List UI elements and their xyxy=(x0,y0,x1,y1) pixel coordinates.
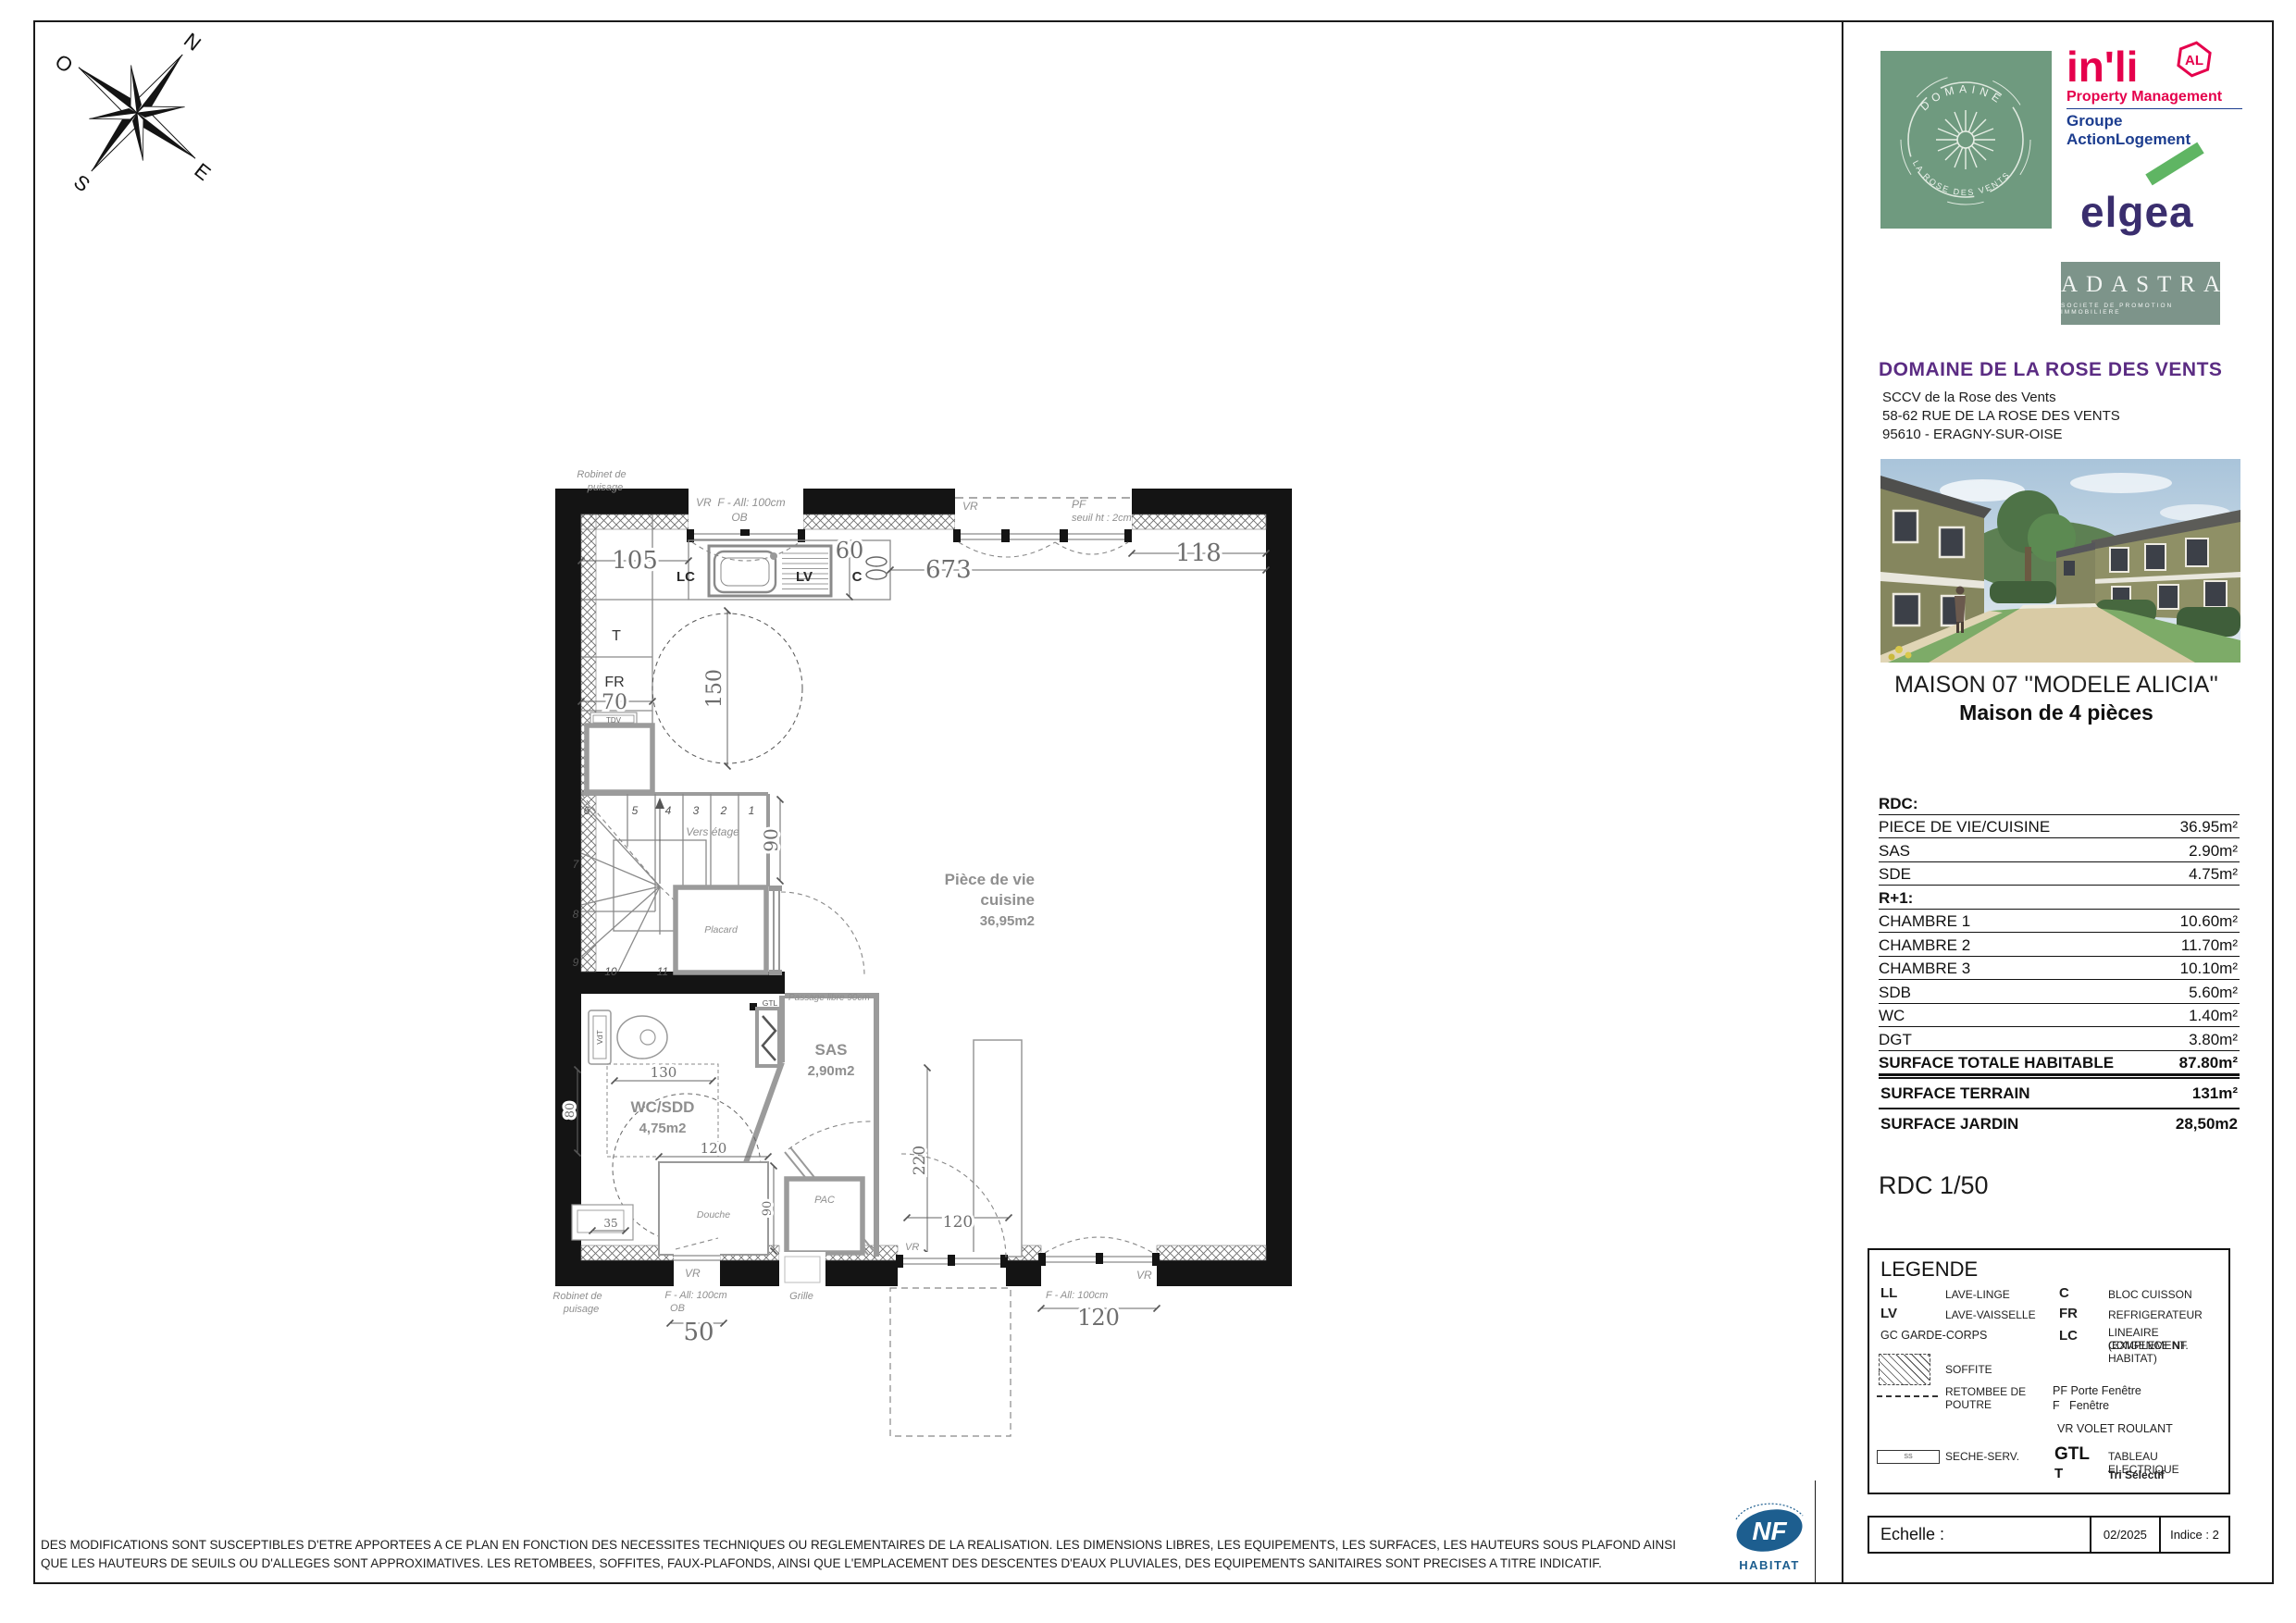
compass-s: S xyxy=(69,170,94,197)
bay-window-top: VR PF seuil ht : 2cm xyxy=(953,489,1132,557)
surface-label: CHAMBRE 3 xyxy=(1879,960,1970,978)
stair-11: 11 xyxy=(657,965,668,978)
gtl-label: GTL xyxy=(763,998,778,1008)
dim-220: 220 xyxy=(911,1146,929,1175)
seche-serv-swatch: SS xyxy=(1877,1450,1940,1464)
sas-name: SAS xyxy=(815,1041,848,1059)
disclaimer: DES MODIFICATIONS SONT SUSCEPTIBLES D'ET… xyxy=(41,1536,1725,1573)
stair-2: 2 xyxy=(720,804,727,817)
floor-scale-label: RDC 1/50 xyxy=(1879,1171,1989,1200)
grille-vent: Grille xyxy=(779,1252,825,1302)
inli-wordmark: in'li xyxy=(2066,43,2138,91)
surface-label: CHAMBRE 1 xyxy=(1879,912,1970,931)
disclaimer-line-2: QUE LES HAUTEURS DE SEUILS OU D'ALLEGES … xyxy=(41,1555,1725,1573)
surface-label: DGT xyxy=(1879,1031,1912,1049)
burner-icon xyxy=(866,570,887,579)
grille-label: Grille xyxy=(789,1291,813,1302)
window-vr-label: VR xyxy=(696,496,712,509)
living-name-2: cuisine xyxy=(980,891,1035,909)
surface-value: 4.75m² xyxy=(2189,865,2238,884)
surface-row: PIECE DE VIE/CUISINE36.95m² xyxy=(1879,815,2240,839)
panel-divider-line xyxy=(1842,20,1843,1582)
gtl-unit: GTL xyxy=(750,998,779,1066)
stair-8: 8 xyxy=(573,908,579,921)
dim-673: 673 xyxy=(925,556,972,584)
legend-t: T xyxy=(2054,1466,2063,1481)
surface-row: DGT3.80m² xyxy=(1879,1027,2240,1051)
surface-value: 10.10m² xyxy=(2180,960,2238,978)
inli-group-line: Groupe ActionLogement xyxy=(2066,112,2242,149)
legend-seche: SECHE-SERV. xyxy=(1945,1450,2019,1463)
bay-pf-label: PF xyxy=(1072,498,1086,511)
living-area: 36,95m2 xyxy=(980,913,1035,929)
dim-50: 50 xyxy=(683,1319,714,1346)
dim-70: 70 xyxy=(602,691,627,714)
window-top-left: VR F - All: 100cm OB xyxy=(687,489,805,561)
indice-cell: Indice : 2 xyxy=(2159,1518,2228,1552)
bay-vr-label: VR xyxy=(962,500,978,513)
dim-80: 80 xyxy=(564,1103,577,1119)
unit-subtitle: Maison de 4 pièces xyxy=(1843,700,2269,725)
window-br-f: F - All: 100cm xyxy=(1046,1290,1108,1301)
table-circle: 150 xyxy=(652,611,802,766)
legend-f: F Fenêtre xyxy=(2053,1399,2109,1412)
surface-label: CHAMBRE 2 xyxy=(1879,936,1970,955)
habitat-text: HABITAT xyxy=(1739,1558,1800,1572)
stair-4: 4 xyxy=(665,804,672,817)
stair-6: 6 xyxy=(584,804,590,817)
faucet xyxy=(770,552,777,560)
dimensions-top: 105 60 673 118 xyxy=(581,538,1266,597)
passage-libre-label: Passage libre 90cm xyxy=(788,993,870,1003)
legend-fr-desc: REFRIGERATEUR xyxy=(2108,1308,2203,1321)
legend-lv: LV xyxy=(1880,1306,1897,1321)
legend-gtl: GTL xyxy=(2054,1444,2090,1465)
floor-plan-drawing: .dim{stroke:#666;stroke-width:1;marker-s… xyxy=(0,0,1842,1623)
inli-logo: in'li AL Property Management Groupe Acti… xyxy=(2066,46,2242,150)
surface-row: CHAMBRE 110.60m² xyxy=(1879,910,2240,934)
label-c: C xyxy=(852,569,863,585)
glazing-alcove xyxy=(974,1040,1022,1257)
living-name-1: Pièce de vie xyxy=(945,871,1035,888)
compass-e: E xyxy=(190,158,215,185)
project-address-2: 58-62 RUE DE LA ROSE DES VENTS xyxy=(1882,407,2249,426)
surface-label: SDB xyxy=(1879,984,1911,1002)
dim-130: 130 xyxy=(651,1064,677,1081)
entry-vr: VR xyxy=(905,1242,919,1253)
surface-table: RDC: PIECE DE VIE/CUISINE36.95m² SAS2.90… xyxy=(1879,791,2240,1076)
window-bl-ob: OB xyxy=(670,1303,685,1314)
legend-box: LEGENDE LL LAVE-LINGE LV LAVE-VAISSELLE … xyxy=(1868,1248,2230,1494)
wc-area: 4,75m2 xyxy=(639,1121,687,1136)
nf-habitat-logo: NF HABITAT xyxy=(1723,1495,1816,1580)
surface-label: SDE xyxy=(1879,865,1911,884)
legend-fr: FR xyxy=(2059,1306,2078,1321)
burner-icon xyxy=(866,557,887,566)
legend-soffite: SOFFITE xyxy=(1945,1363,1992,1376)
surface-label: SAS xyxy=(1879,842,1910,861)
hall-door: 90 xyxy=(760,799,864,975)
legend-c-desc: BLOC CUISSON xyxy=(2108,1288,2192,1301)
elgea-logo: elgea xyxy=(2080,155,2224,248)
jardin-row: SURFACE JARDIN28,50m2 xyxy=(1879,1109,2240,1138)
label-lv: LV xyxy=(796,569,813,585)
compass-o: O xyxy=(51,50,78,78)
surface-value: 5.60m² xyxy=(2189,984,2238,1002)
surface-label: PIECE DE VIE/CUISINE xyxy=(1879,818,2050,836)
domaine-logo-bottom-text: LA ROSE DES VENTS xyxy=(1911,159,2012,197)
project-title: DOMAINE DE LA ROSE DES VENTS xyxy=(1879,359,2249,381)
elgea-wordmark: elgea xyxy=(2080,187,2224,237)
robinet-bottom-2: puisage xyxy=(563,1304,600,1315)
legend-ll-desc: LAVE-LINGE xyxy=(1945,1288,2010,1301)
legend-title: LEGENDE xyxy=(1880,1258,1978,1282)
terrain-table: SURFACE TERRAIN131m² SURFACE JARDIN28,50… xyxy=(1879,1077,2240,1138)
domaine-logo: DOMAINE LA ROSE DES VENTS xyxy=(1880,51,2052,229)
window-ob-label: OB xyxy=(731,511,747,524)
label-tri: T xyxy=(612,628,621,644)
dim-120-door: 120 xyxy=(943,1213,973,1232)
surface-row: CHAMBRE 310.10m² xyxy=(1879,957,2240,981)
wc-name: WC/SDD xyxy=(631,1098,695,1116)
placard: Placard xyxy=(676,887,766,973)
domaine-logo-top-text: DOMAINE xyxy=(1917,82,2006,113)
echelle-cell: Echelle : xyxy=(1869,1518,2090,1552)
robinet-top-1: Robinet de xyxy=(577,469,626,480)
robinet-bottom-1: Robinet de xyxy=(552,1291,602,1302)
inli-rule xyxy=(2066,108,2242,109)
svg-text:LA ROSE DES VENTS: LA ROSE DES VENTS xyxy=(1911,159,2012,197)
window-f-label: F - All: 100cm xyxy=(717,496,785,509)
surface-header-r1: R+1: xyxy=(1879,886,2240,910)
surface-header-rdc: RDC: xyxy=(1879,791,2240,815)
legend-c: C xyxy=(2059,1285,2069,1301)
legend-lv-desc: LAVE-VAISSELLE xyxy=(1945,1308,2036,1321)
adastra-subtitle: SOCIETE DE PROMOTION IMMOBILIERE xyxy=(2061,303,2220,316)
dim-60: 60 xyxy=(836,538,864,564)
vers-etage-label: Vers étage xyxy=(686,825,739,838)
compass-n: N xyxy=(180,28,205,55)
terrain-row: SURFACE TERRAIN131m² xyxy=(1879,1077,2240,1109)
retombee-dash-swatch xyxy=(1877,1395,1938,1397)
dim-150: 150 xyxy=(703,669,726,708)
stair-5: 5 xyxy=(632,804,639,817)
surface-row: SDE4.75m² xyxy=(1879,862,2240,886)
legend-lc: LC xyxy=(2059,1328,2078,1344)
surface-value: 36.95m² xyxy=(2180,818,2238,836)
legend-vr: VR VOLET ROULANT xyxy=(2057,1422,2173,1435)
surface-value: 11.70m² xyxy=(2181,936,2238,955)
inli-al-badge: AL xyxy=(2176,41,2213,78)
sas-area: 2,90m2 xyxy=(808,1063,855,1079)
project-address-1: SCCV de la Rose des Vents xyxy=(1882,389,2249,407)
project-render-photo xyxy=(1880,459,2240,663)
disclaimer-line-1: DES MODIFICATIONS SONT SUSCEPTIBLES D'ET… xyxy=(41,1536,1725,1555)
inli-al-text: AL xyxy=(2185,53,2203,68)
surface-total-row: SURFACE TOTALE HABITABLE87.80m² xyxy=(1879,1051,2240,1077)
pac-unit: PAC xyxy=(787,1179,863,1253)
unit-title: MAISON 07 ''MODELE ALICIA'' xyxy=(1843,672,2269,699)
compass-rose: N E S O xyxy=(0,0,274,251)
dim-105: 105 xyxy=(612,547,658,575)
legend-gc: GC GARDE-CORPS xyxy=(1880,1329,1987,1342)
toilet-bowl xyxy=(617,1016,667,1059)
shower xyxy=(659,1162,768,1255)
window-br-vr: VR xyxy=(1136,1269,1152,1282)
dim-90-shower: 90 xyxy=(761,1201,775,1217)
dim-120-shower: 120 xyxy=(701,1140,727,1157)
stair-10: 10 xyxy=(604,965,617,978)
label-fr: FR xyxy=(604,675,624,690)
legend-retombee-2: POUTRE xyxy=(1945,1398,1992,1411)
surface-row: CHAMBRE 211.70m² xyxy=(1879,933,2240,957)
project-address-3: 95610 - ERAGNY-SUR-OISE xyxy=(1882,426,2249,444)
surface-value: 1.40m² xyxy=(2189,1007,2238,1025)
douche-label: Douche xyxy=(697,1209,730,1220)
legend-t-desc: Tri Sélectif xyxy=(2108,1468,2165,1481)
vdt-label: VdT xyxy=(595,1030,604,1045)
surface-row: SAS2.90m² xyxy=(1879,838,2240,862)
wc-sdd: VdT 130 WC/SDD 4,75m2 80 Douche 120 90 3… xyxy=(564,1010,775,1255)
window-bl-vr: VR xyxy=(685,1267,701,1280)
surface-value: 2.90m² xyxy=(2189,842,2238,861)
adastra-logo: ADASTRA SOCIETE DE PROMOTION IMMOBILIERE xyxy=(2061,262,2220,325)
date-cell: 02/2025 xyxy=(2090,1518,2159,1552)
ss-text: SS xyxy=(1904,1454,1912,1460)
title-block: Echelle : 02/2025 Indice : 2 xyxy=(1868,1516,2230,1554)
stair-1: 1 xyxy=(749,804,755,817)
surface-value: 3.80m² xyxy=(2189,1031,2238,1049)
svg-text:DOMAINE: DOMAINE xyxy=(1917,82,2006,113)
window-bottom-left: VR F - All: 100cm OB 50 xyxy=(664,1238,726,1346)
soffite-hatch-swatch xyxy=(1879,1354,1930,1385)
dim-118: 118 xyxy=(1175,539,1222,567)
surface-value: 10.60m² xyxy=(2180,912,2238,931)
surface-row: SDB5.60m² xyxy=(1879,980,2240,1004)
window-bl-f: F - All: 100cm xyxy=(664,1290,726,1301)
legend-ll: LL xyxy=(1880,1285,1897,1301)
dim-90: 90 xyxy=(760,828,782,851)
adastra-wordmark: ADASTRA xyxy=(2053,272,2228,298)
pac-label: PAC xyxy=(814,1195,835,1206)
surface-row: WC1.40m² xyxy=(1879,1004,2240,1028)
terrace-outline xyxy=(890,1288,1011,1436)
plan-sheet: { "compass": {"n": "N", "e": "E", "s": "… xyxy=(0,0,2296,1623)
cupboard xyxy=(587,725,652,792)
legend-pf: PF Porte Fenêtre xyxy=(2053,1384,2141,1397)
label-lc: LC xyxy=(676,569,695,585)
dim-35: 35 xyxy=(603,1217,617,1230)
robinet-top-2: puisage xyxy=(587,482,624,493)
legend-retombee-1: RETOMBEE DE xyxy=(1945,1385,2026,1398)
stair-9: 9 xyxy=(573,956,579,969)
nf-text: NF xyxy=(1752,1517,1787,1545)
placard-label: Placard xyxy=(704,924,738,935)
bay-seuil-label: seuil ht : 2cm xyxy=(1072,513,1132,524)
window-bottom-right: VR F - All: 100cm 120 xyxy=(1038,1237,1160,1331)
living-room: Pièce de vie cuisine 36,95m2 220 120 xyxy=(907,871,1035,1257)
inli-tagline: Property Management xyxy=(2066,89,2242,105)
stair-3: 3 xyxy=(693,804,700,817)
dim-120-window: 120 xyxy=(1077,1305,1120,1331)
surface-label: WC xyxy=(1879,1007,1905,1025)
legend-lc-desc-2: (EXIGENCE NF HABITAT) xyxy=(2108,1339,2228,1365)
